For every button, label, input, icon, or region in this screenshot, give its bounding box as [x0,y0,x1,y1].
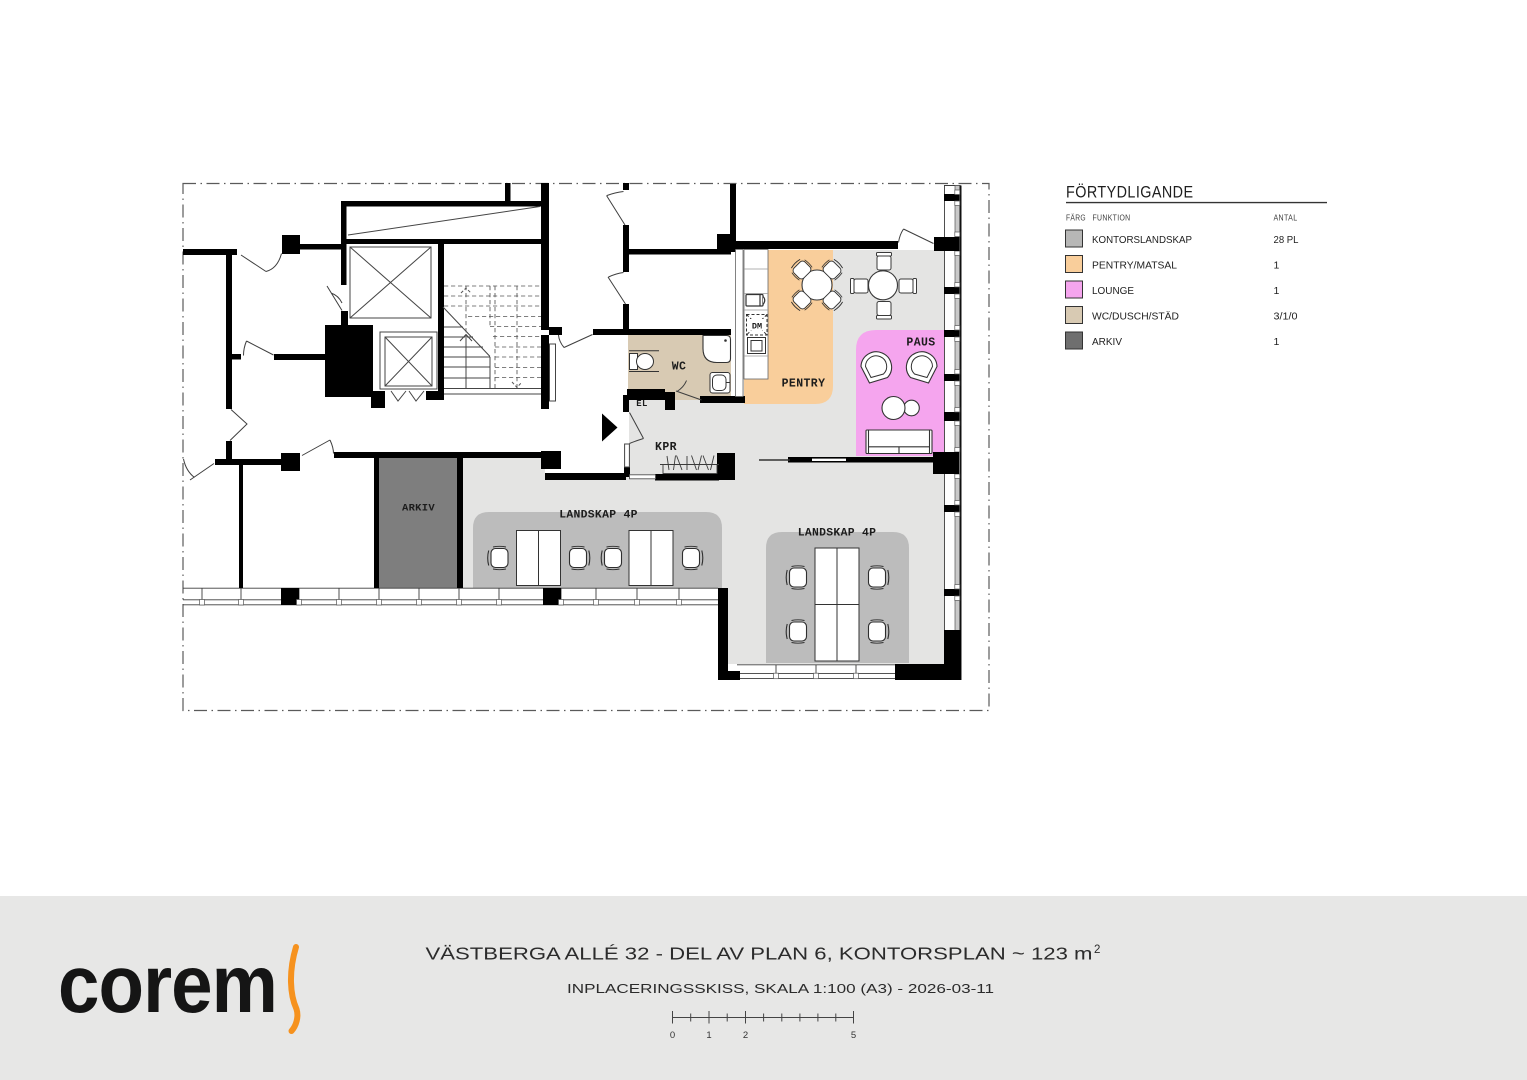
svg-text:WC: WC [672,361,687,374]
svg-text:PENTRY/MATSAL: PENTRY/MATSAL [1092,260,1177,272]
svg-text:KONTORSLANDSKAP: KONTORSLANDSKAP [1092,234,1192,246]
svg-text:ANTAL: ANTAL [1274,214,1298,223]
svg-text:1: 1 [1274,260,1280,272]
svg-text:3/1/0: 3/1/0 [1274,311,1298,323]
svg-text:FÖRTYDLIGANDE: FÖRTYDLIGANDE [1066,184,1194,202]
svg-text:1: 1 [706,1030,711,1041]
svg-text:5: 5 [851,1030,856,1041]
svg-text:1: 1 [1274,336,1280,348]
svg-text:FÄRG: FÄRG [1066,214,1086,223]
svg-text:INPLACERINGSSKISS, SKALA 1:100: INPLACERINGSSKISS, SKALA 1:100 (A3) - 20… [567,981,994,996]
svg-text:LANDSKAP 4P: LANDSKAP 4P [798,528,877,540]
svg-text:2: 2 [743,1030,748,1041]
svg-text:KPR: KPR [655,441,677,454]
svg-text:EL: EL [636,399,647,409]
svg-text:LANDSKAP 4P: LANDSKAP 4P [559,510,638,522]
svg-text:PAUS: PAUS [906,337,935,350]
svg-text:WC/DUSCH/STÄD: WC/DUSCH/STÄD [1092,311,1179,323]
svg-text:ARKIV: ARKIV [1092,336,1122,348]
svg-text:DM: DM [752,322,762,332]
svg-text:ARKIV: ARKIV [402,503,435,515]
svg-text:corem: corem [58,939,277,1030]
svg-text:FUNKTION: FUNKTION [1093,214,1131,223]
svg-text:LOUNGE: LOUNGE [1092,285,1134,297]
svg-text:1: 1 [1274,285,1280,297]
svg-text:2: 2 [1094,944,1100,956]
svg-text:0: 0 [670,1030,675,1041]
svg-text:PENTRY: PENTRY [782,378,826,391]
svg-text:28 PL: 28 PL [1274,234,1299,246]
svg-text:VÄSTBERGA ALLÉ 32 - DEL AV PLA: VÄSTBERGA ALLÉ 32 - DEL AV PLAN 6, KONTO… [426,944,1093,964]
